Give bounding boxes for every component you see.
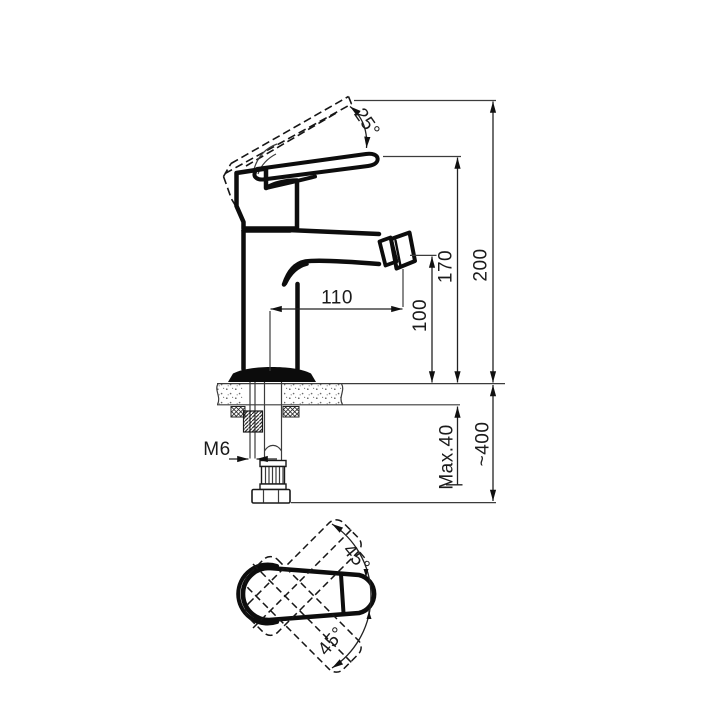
aerator-cap bbox=[391, 233, 415, 269]
dim-45-up-label: 45° bbox=[338, 540, 374, 577]
dim-overall-height: 200 bbox=[471, 102, 494, 383]
dim-m6-label: M6 bbox=[203, 439, 230, 460]
top-view: 45° 45° bbox=[238, 516, 374, 677]
hose-collar-bottom bbox=[260, 484, 286, 490]
gasket-right bbox=[283, 407, 299, 418]
spout-bottom-edge bbox=[284, 261, 379, 285]
countertop-stipple-left bbox=[217, 384, 244, 405]
countertop-stipple-right bbox=[284, 384, 343, 405]
dim-handle-tilt: 25° bbox=[349, 104, 384, 148]
drawing-canvas: 25° 200 170 100 bbox=[0, 0, 720, 720]
mounting-nut bbox=[244, 411, 263, 432]
dim-45-down-label: 45° bbox=[314, 623, 350, 660]
base-flange bbox=[228, 367, 316, 382]
spout-top-edge bbox=[288, 230, 379, 234]
dim-max-deck-thickness: Max.40 bbox=[437, 407, 463, 490]
hose-collar-top bbox=[260, 461, 286, 467]
dim-200-label: 200 bbox=[471, 248, 492, 281]
fixing-and-hose bbox=[244, 382, 291, 503]
faucet-dimension-drawing: 25° 200 170 100 bbox=[0, 0, 720, 720]
dim-handle-height: 170 bbox=[436, 158, 458, 383]
dim-110-label: 110 bbox=[321, 288, 353, 309]
dim-100-label: 100 bbox=[410, 299, 431, 332]
shank-tube bbox=[265, 382, 282, 461]
dim-spout-reach: 110 bbox=[271, 288, 403, 310]
handle-swing-dashed bbox=[242, 516, 366, 677]
gasket-left bbox=[231, 407, 245, 418]
aerator bbox=[380, 233, 416, 269]
handle-grip-line bbox=[341, 575, 344, 614]
hose-crimp-curve bbox=[265, 445, 282, 451]
dim-aerator-height: 100 bbox=[410, 257, 432, 383]
dim-170-label: 170 bbox=[436, 250, 457, 283]
dim-hose-label: ~400 bbox=[473, 422, 494, 467]
faucet-body bbox=[224, 97, 416, 383]
handle-capsule bbox=[243, 568, 374, 620]
side-view: 25° 200 170 100 bbox=[203, 97, 505, 504]
dim-max40-label: Max.40 bbox=[437, 424, 458, 489]
raised-handle-dashed bbox=[224, 97, 352, 212]
hose-hex-nut bbox=[252, 490, 290, 504]
dim-hose-length: ~400 bbox=[473, 385, 494, 501]
